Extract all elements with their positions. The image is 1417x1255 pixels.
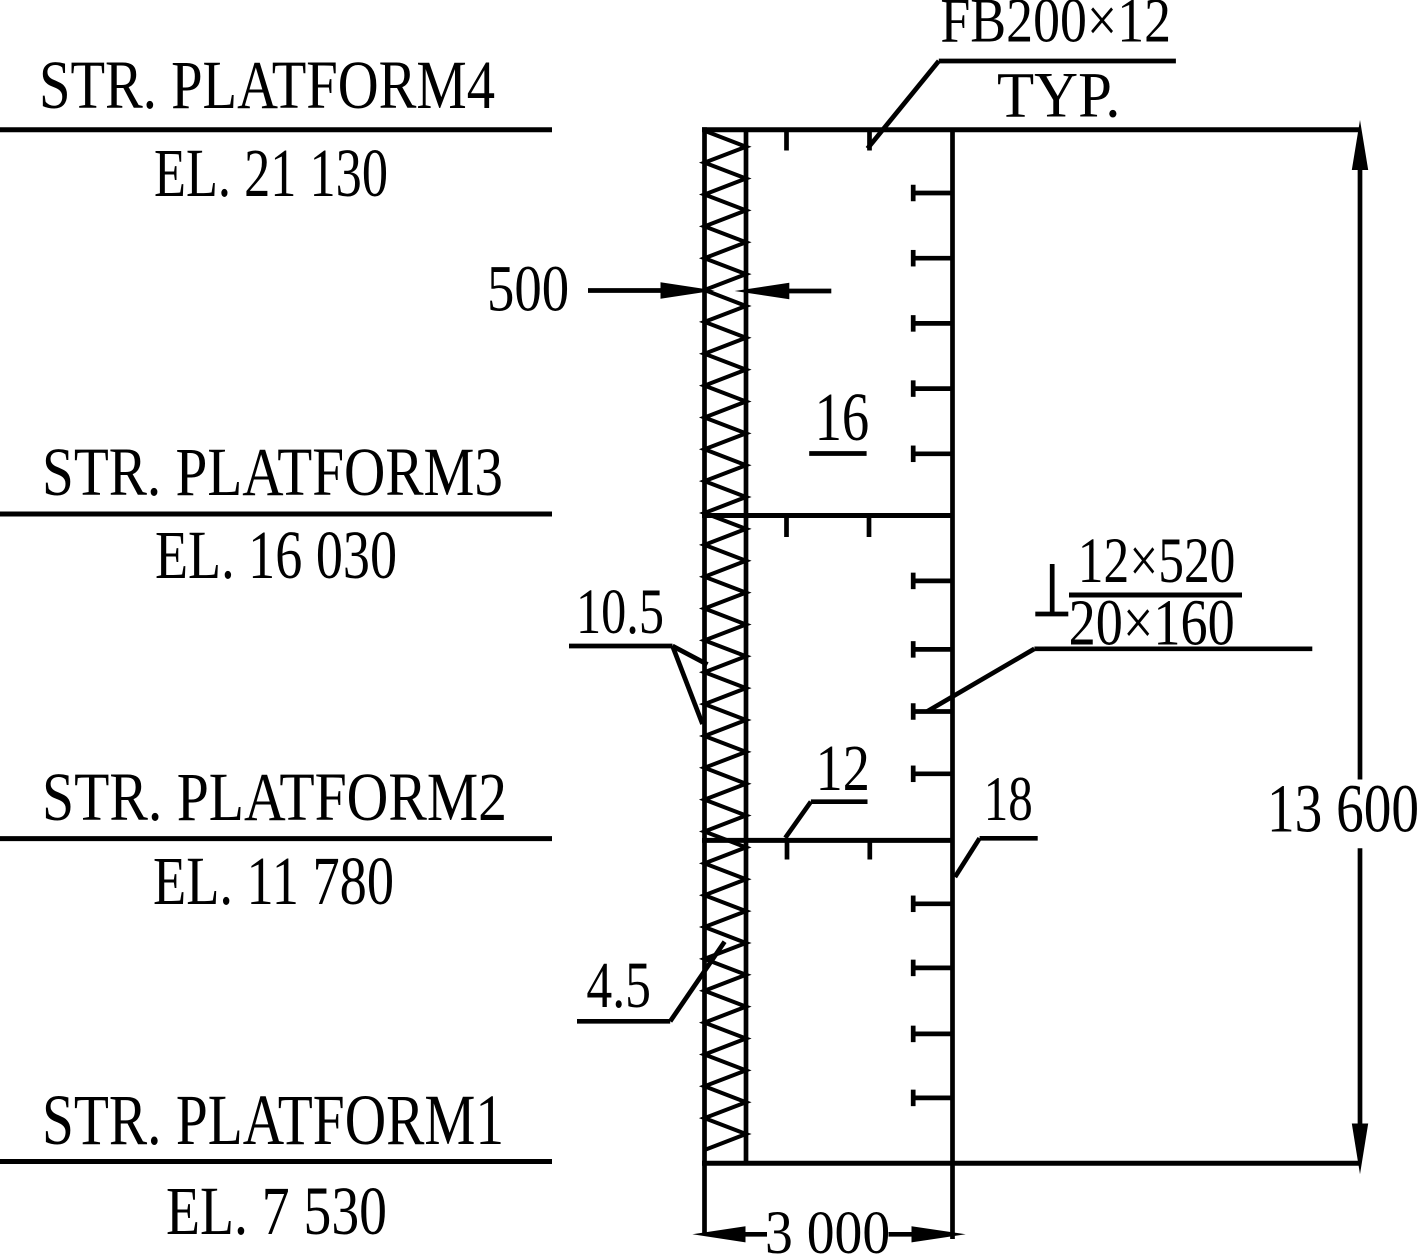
svg-text:STR. PLATFORM1: STR. PLATFORM1 bbox=[42, 1080, 504, 1160]
svg-text:STR. PLATFORM4: STR. PLATFORM4 bbox=[39, 47, 495, 123]
svg-text:16: 16 bbox=[815, 379, 870, 455]
svg-text:13 600: 13 600 bbox=[1267, 771, 1417, 847]
svg-text:20×160: 20×160 bbox=[1069, 587, 1235, 660]
svg-text:EL. 16 030: EL. 16 030 bbox=[155, 517, 397, 593]
svg-text:500: 500 bbox=[487, 252, 569, 325]
svg-text:STR. PLATFORM2: STR. PLATFORM2 bbox=[42, 759, 507, 835]
svg-text:12: 12 bbox=[816, 732, 870, 805]
svg-text:3 000: 3 000 bbox=[765, 1200, 890, 1255]
svg-text:FB200×12: FB200×12 bbox=[940, 0, 1171, 56]
svg-text:TYP.: TYP. bbox=[997, 60, 1120, 132]
svg-text:EL. 21 130: EL. 21 130 bbox=[154, 135, 388, 211]
svg-text:EL. 11 780: EL. 11 780 bbox=[153, 843, 394, 919]
svg-text:10.5: 10.5 bbox=[576, 576, 664, 648]
svg-text:18: 18 bbox=[984, 764, 1033, 834]
svg-text:STR. PLATFORM3: STR. PLATFORM3 bbox=[42, 434, 503, 510]
svg-text:EL. 7 530: EL. 7 530 bbox=[166, 1173, 387, 1249]
svg-text:4.5: 4.5 bbox=[586, 949, 651, 1022]
